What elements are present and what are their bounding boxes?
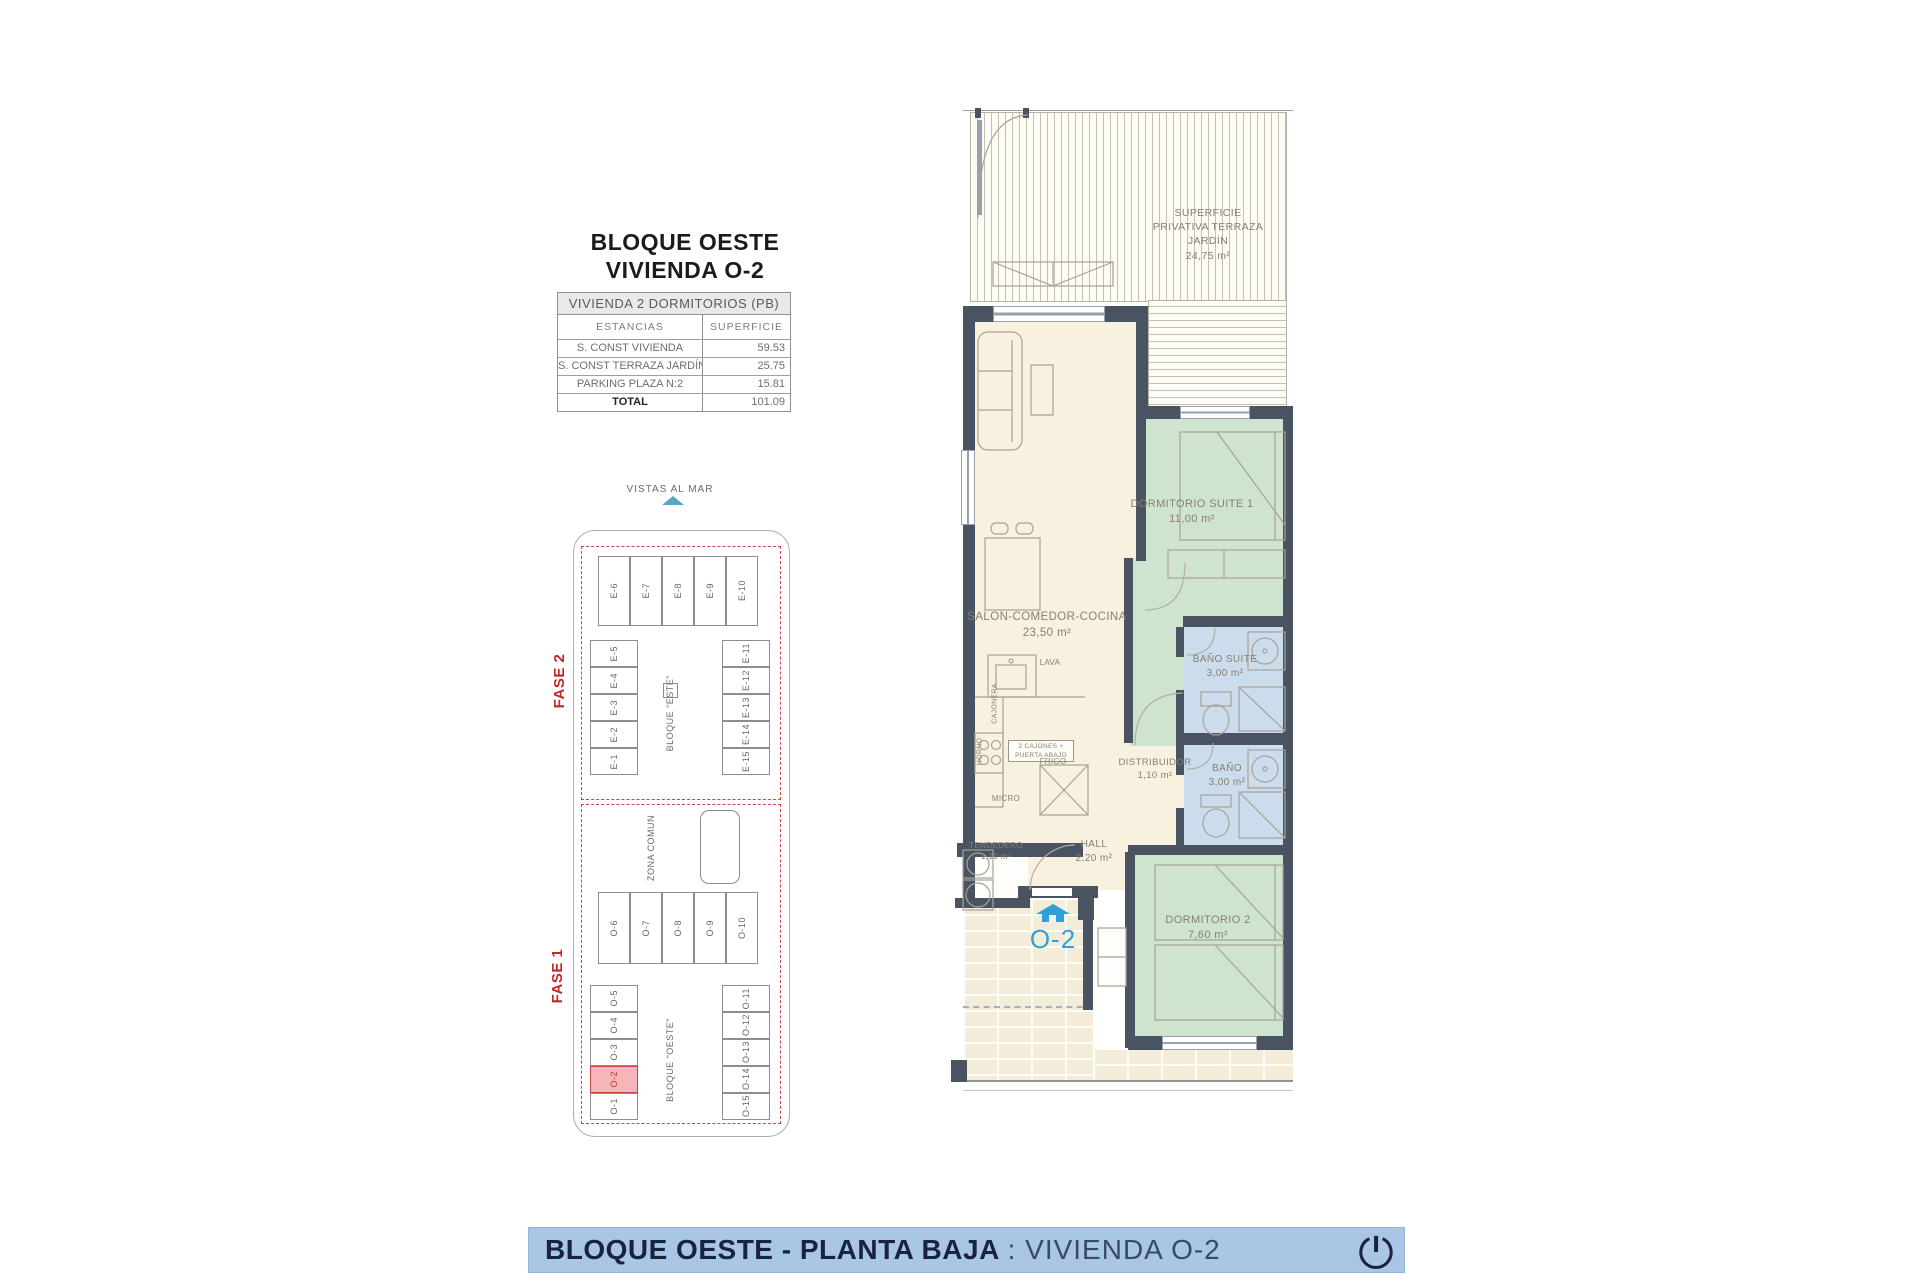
label-frigo: FRIGO (1033, 757, 1073, 766)
siteplan-unit-o-5: O-5 (590, 985, 638, 1012)
unit-label: O-13 (741, 1041, 751, 1063)
unit-label: E-14 (741, 724, 751, 745)
unit-label: O-15 (741, 1095, 751, 1117)
gate-swing-arc (978, 115, 1028, 218)
unit-label: O-12 (741, 1014, 751, 1036)
label-dormitorio2: DORMITORIO 2 7,60 m² (1128, 913, 1288, 943)
unit-label: O-10 (737, 917, 747, 939)
label-cajonera: CAJONERA (992, 681, 999, 727)
unit-label: O-1 (609, 1098, 619, 1115)
zona-comun-label: ZONA COMUN (642, 806, 660, 890)
siteplan-unit-o-12: O-12 (722, 1012, 770, 1039)
label-suite1: DORMITORIO SUITE 1 11,00 m² (1112, 497, 1272, 527)
planter (993, 262, 1113, 286)
bano-suite-fixtures (1201, 632, 1285, 735)
siteplan-unit-o-6: O-6 (598, 892, 630, 964)
siteplan-unit-e-3: E-3 (590, 694, 638, 721)
siteplan-unit-o-9: O-9 (694, 892, 726, 964)
banner-title-regular: : VIVIENDA O-2 (1008, 1234, 1221, 1265)
siteplan-unit-e-5: E-5 (590, 640, 638, 667)
unit-label: E-11 (741, 643, 751, 663)
table-header: VIVIENDA 2 DORMITORIOS (PB) (558, 293, 790, 315)
unit-label: E-1 (609, 754, 619, 770)
label-horno: HORNO (977, 734, 984, 770)
unit-label: O-4 (609, 1017, 619, 1034)
siteplan-unit-e-14: E-14 (722, 721, 770, 748)
label-micro: MICRO (986, 794, 1026, 803)
unit-label: E-13 (741, 697, 751, 718)
table-row: PARKING PLAZA N:2 15.81 (558, 376, 790, 394)
label-lava: LAVA (1030, 658, 1070, 667)
siteplan-unit-e-7: E-7 (630, 556, 662, 626)
banner-title-bold: BLOQUE OESTE - PLANTA BAJA (545, 1234, 1000, 1265)
north-compass-icon (1357, 1232, 1395, 1270)
siteplan-unit-o-8: O-8 (662, 892, 694, 964)
siteplan-unit-o-2: O-2 (590, 1066, 638, 1093)
title-banner: BLOQUE OESTE - PLANTA BAJA : VIVIENDA O-… (528, 1227, 1405, 1273)
floorplan-sheet: BLOQUE OESTE VIVIENDA O-2 VIVIENDA 2 DOR… (0, 0, 1920, 1280)
unit-label: E-8 (673, 583, 683, 599)
table-subheader: ESTANCIAS SUPERFICIE (558, 315, 790, 340)
unit-label: E-7 (641, 583, 651, 599)
sofa (978, 332, 1022, 450)
unit-label: E-6 (609, 583, 619, 599)
unit-label: E-5 (609, 646, 619, 662)
unit-label: O-14 (741, 1068, 751, 1090)
siteplan-unit-o-4: O-4 (590, 1012, 638, 1039)
unit-label: E-2 (609, 727, 619, 743)
house-icon (1035, 903, 1071, 923)
siteplan-unit-o-10: O-10 (726, 892, 758, 964)
bed2 (1155, 945, 1283, 1020)
siteplan-unit-e-8: E-8 (662, 556, 694, 626)
gate-post (1023, 108, 1029, 118)
este-core-square (663, 683, 678, 698)
title-line1: BLOQUE OESTE (591, 229, 780, 255)
siteplan-unit-e-9: E-9 (694, 556, 726, 626)
unit-label: O-2 (609, 1071, 619, 1088)
dining-set (985, 523, 1040, 610)
unit-label: E-12 (741, 670, 751, 691)
label-hall: HALL 2,20 m² (1054, 838, 1134, 865)
unit-label: E-10 (737, 580, 747, 601)
page-title: BLOQUE OESTE VIVIENDA O-2 (560, 228, 810, 284)
sea-direction-icon (662, 496, 684, 505)
gate-post (975, 108, 981, 118)
title-line2: VIVIENDA O-2 (606, 257, 765, 283)
banner-text: BLOQUE OESTE - PLANTA BAJA : VIVIENDA O-… (545, 1228, 1221, 1272)
table-row: S. CONST VIVIENDA 59.53 (558, 340, 790, 358)
label-bano-suite: BAÑO SUITE 3,00 m² (1170, 653, 1280, 680)
coffee-table (1031, 365, 1053, 415)
label-tendedero: TENDEDERO 1,10 m² (956, 841, 1036, 863)
siteplan-unit-o-1: O-1 (590, 1093, 638, 1120)
unit-label: E-9 (705, 583, 715, 599)
table-row: S. CONST TERRAZA JARDÍN 25.75 (558, 358, 790, 376)
fase2-label: FASE 2 (551, 646, 569, 716)
siteplan-unit-e-1: E-1 (590, 748, 638, 775)
unit-label: E-15 (741, 751, 751, 772)
fase1-label: FASE 1 (549, 941, 567, 1011)
bloque-oeste-label: BLOQUE "OESTE" (660, 995, 680, 1125)
bloque-este-label: BLOQUE "ESTE" (660, 648, 680, 778)
unit-label: O-6 (609, 920, 619, 937)
kitchen-units (975, 655, 1088, 815)
unit-label: E-3 (609, 700, 619, 716)
gate-leaf (977, 120, 982, 215)
siteplan-unit-e-15: E-15 (722, 748, 770, 775)
siteplan-unit-e-13: E-13 (722, 694, 770, 721)
siteplan-unit-o-3: O-3 (590, 1039, 638, 1066)
table-total-row: TOTAL 101.09 (558, 394, 790, 411)
col-estancias: ESTANCIAS (558, 315, 702, 339)
siteplan-unit-o-14: O-14 (722, 1066, 770, 1093)
surface-summary-table: VIVIENDA 2 DORMITORIOS (PB) ESTANCIAS SU… (557, 292, 791, 412)
unit-label: O-9 (705, 920, 715, 937)
siteplan-unit-e-12: E-12 (722, 667, 770, 694)
siteplan-unit-e-4: E-4 (590, 667, 638, 694)
label-salon: SALON-COMEDOR-COCINA 23,50 m² (967, 610, 1127, 641)
vistas-al-mar-label: VISTAS AL MAR (600, 484, 740, 495)
unit-label: O-3 (609, 1044, 619, 1061)
siteplan-unit-o-13: O-13 (722, 1039, 770, 1066)
siteplan-unit-o-7: O-7 (630, 892, 662, 964)
siteplan-unit-e-6: E-6 (598, 556, 630, 626)
siteplan-unit-e-2: E-2 (590, 721, 638, 748)
col-superficie: SUPERFICIE (702, 315, 790, 339)
unit-tag-o2: O-2 (1028, 924, 1078, 955)
unit-label: O-5 (609, 990, 619, 1007)
label-terrace: SUPERFICIE PRIVATIVA TERRAZA JARDÍN 24,7… (1128, 206, 1288, 263)
siteplan-unit-e-10: E-10 (726, 556, 758, 626)
unit-label: O-7 (641, 920, 651, 937)
unit-label: O-8 (673, 920, 683, 937)
siteplan-unit-o-15: O-15 (722, 1093, 770, 1120)
unit-label: O-11 (741, 988, 751, 1009)
siteplan-unit-e-11: E-11 (722, 640, 770, 667)
unit-label: E-4 (609, 673, 619, 689)
siteplan-unit-o-11: O-11 (722, 985, 770, 1012)
pool-outline (700, 810, 740, 884)
label-distribuidor: DISTRIBUIDOR 1,10 m² (1105, 757, 1205, 783)
